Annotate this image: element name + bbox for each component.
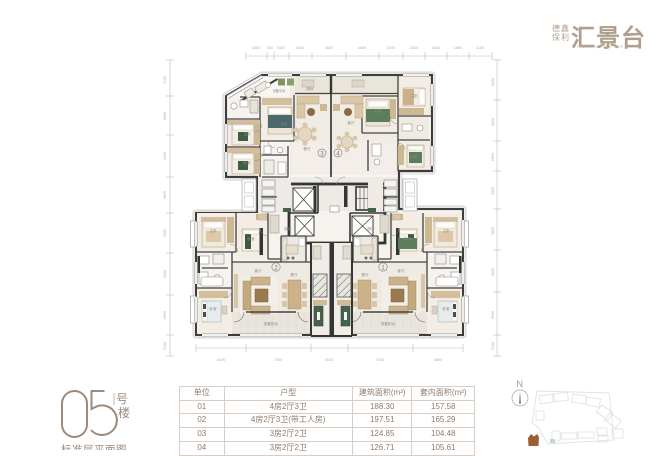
svg-text:观景阳台: 观景阳台 — [381, 321, 396, 326]
svg-text:1800: 1800 — [454, 46, 462, 50]
svg-text:4600: 4600 — [434, 358, 442, 362]
svg-text:主卧: 主卧 — [280, 121, 288, 126]
svg-text:2400: 2400 — [410, 46, 418, 50]
svg-text:卧室: 卧室 — [410, 154, 418, 159]
svg-text:4200: 4200 — [163, 152, 167, 160]
svg-text:主卧: 主卧 — [442, 228, 450, 233]
svg-text:标准层平面图: 标准层平面图 — [61, 444, 127, 450]
svg-text:厨房: 厨房 — [306, 86, 314, 91]
svg-text:卧室: 卧室 — [442, 306, 450, 311]
svg-text:卧室: 卧室 — [209, 306, 217, 311]
svg-text:4000: 4000 — [163, 229, 167, 237]
svg-text:2600: 2600 — [491, 153, 495, 161]
svg-text:主卧: 主卧 — [209, 228, 217, 233]
svg-text:1500: 1500 — [277, 46, 285, 50]
svg-text:卧室: 卧室 — [247, 236, 255, 241]
svg-text:7300: 7300 — [274, 358, 282, 362]
svg-text:2100: 2100 — [163, 76, 167, 84]
svg-text:2100: 2100 — [163, 342, 167, 350]
svg-text:客厅: 客厅 — [347, 120, 355, 125]
svg-text:厨房: 厨房 — [284, 226, 292, 231]
svg-text:4600: 4600 — [325, 46, 333, 50]
svg-text:2400: 2400 — [296, 46, 304, 50]
svg-text:1100: 1100 — [476, 46, 484, 50]
svg-text:观景阳台: 观景阳台 — [264, 321, 279, 326]
svg-text:餐厅: 餐厅 — [290, 272, 298, 277]
svg-text:4600: 4600 — [358, 46, 366, 50]
svg-text:4000: 4000 — [163, 311, 167, 319]
svg-text:楼: 楼 — [118, 405, 130, 420]
svg-text:主卧: 主卧 — [410, 93, 418, 98]
svg-text:3100: 3100 — [387, 46, 395, 50]
svg-text:3600: 3600 — [491, 118, 495, 126]
svg-text:卧室: 卧室 — [243, 160, 251, 165]
svg-text:4200: 4200 — [252, 46, 260, 50]
svg-text:3900: 3900 — [163, 112, 167, 120]
svg-text:1800: 1800 — [432, 46, 440, 50]
svg-text:4200: 4200 — [163, 270, 167, 278]
svg-text:5100: 5100 — [325, 358, 333, 362]
svg-text:N: N — [517, 379, 524, 389]
svg-text:3900: 3900 — [491, 311, 495, 319]
svg-text:号: 号 — [116, 392, 128, 406]
svg-text:厨房: 厨房 — [367, 226, 375, 231]
svg-text:卧室: 卧室 — [404, 236, 412, 241]
svg-text:设备平台: 设备平台 — [273, 88, 286, 93]
svg-text:3400: 3400 — [491, 78, 495, 86]
svg-text:3800: 3800 — [491, 268, 495, 276]
svg-text:3600: 3600 — [163, 191, 167, 199]
svg-text:餐厅: 餐厅 — [303, 146, 311, 151]
svg-text:客厅: 客厅 — [254, 268, 262, 273]
svg-text:餐厅: 餐厅 — [361, 272, 369, 277]
svg-text:客厅: 客厅 — [397, 268, 405, 273]
svg-text:2100: 2100 — [491, 342, 495, 350]
svg-text:4100: 4100 — [217, 358, 225, 362]
svg-text:3300: 3300 — [491, 187, 495, 195]
svg-text:3600: 3600 — [491, 227, 495, 235]
svg-text:主卧: 主卧 — [243, 131, 251, 136]
svg-text:卧室: 卧室 — [374, 108, 382, 113]
svg-text:7300: 7300 — [376, 358, 384, 362]
svg-text:500: 500 — [267, 46, 273, 50]
